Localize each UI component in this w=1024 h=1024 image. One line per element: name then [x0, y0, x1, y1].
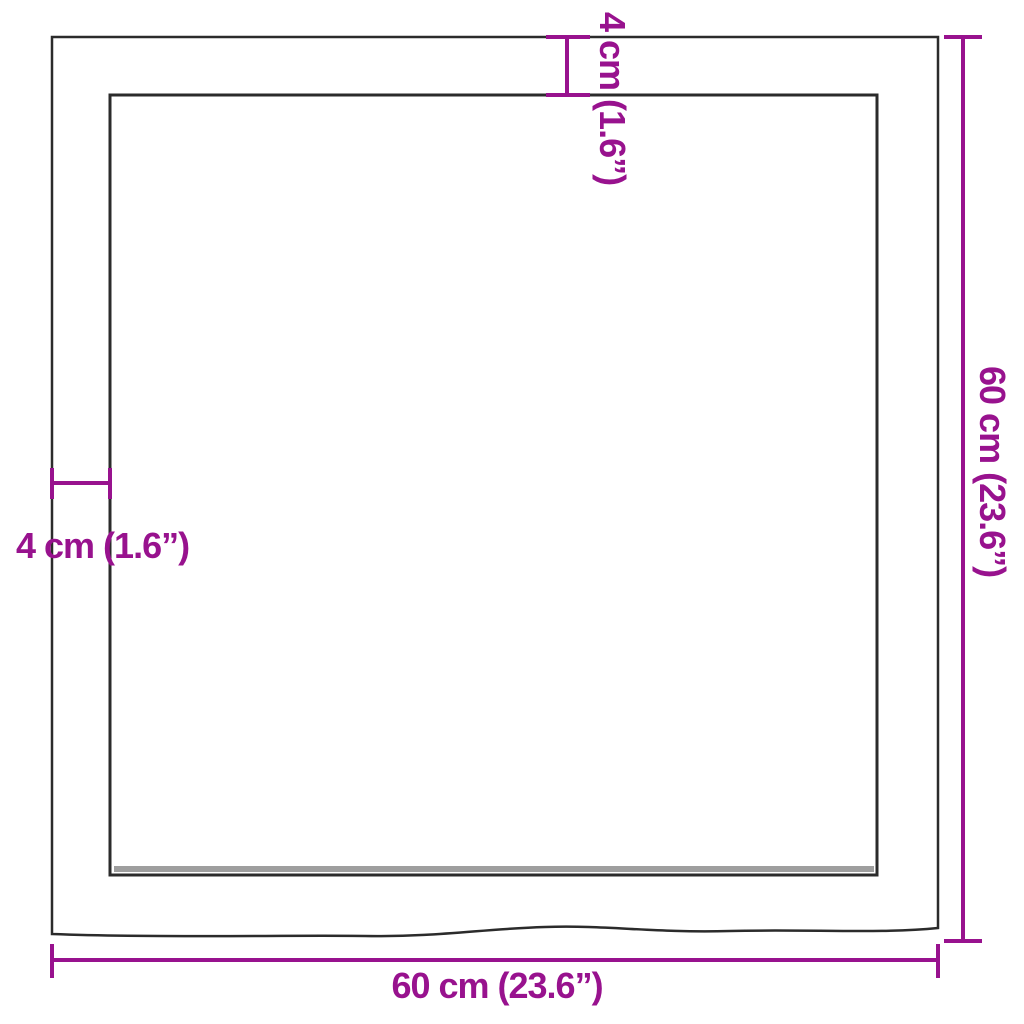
bottom-width-label: 60 cm (23.6”) — [391, 964, 602, 1007]
board-outer-edge — [52, 37, 938, 936]
top-thickness-label: 4 cm (1.6”) — [591, 12, 634, 185]
board-inner-edge — [110, 95, 877, 875]
dimension-top-thickness — [546, 37, 590, 95]
right-height-label: 60 cm (23.6”) — [971, 366, 1014, 577]
left-thickness-label: 4 cm (1.6”) — [16, 524, 189, 567]
board-drawing — [0, 0, 1024, 1024]
dimension-left-thickness — [52, 468, 110, 499]
dimension-diagram: 4 cm (1.6”) 60 cm (23.6”) 4 cm (1.6”) 60… — [0, 0, 1024, 1024]
